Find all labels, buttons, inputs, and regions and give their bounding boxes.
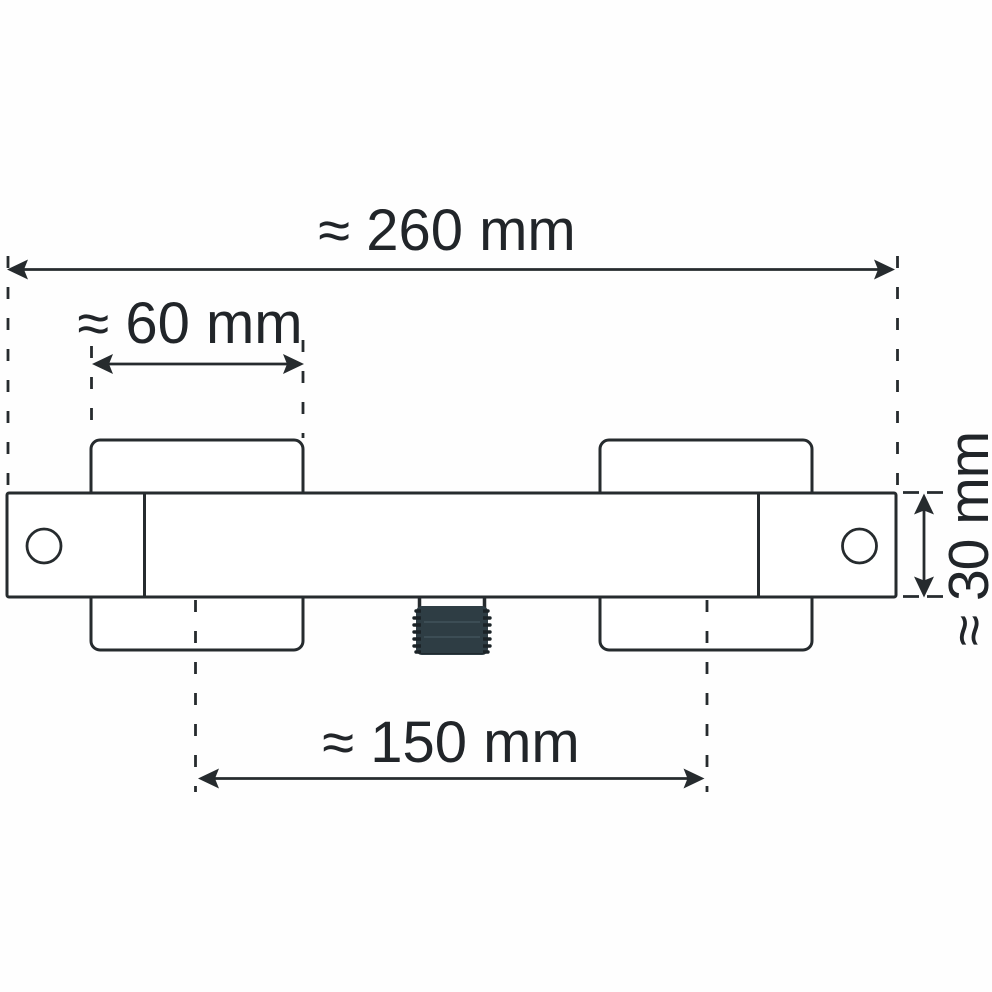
svg-text:≈ 260 mm: ≈ 260 mm	[318, 198, 575, 263]
svg-text:≈ 60 mm: ≈ 60 mm	[77, 291, 302, 356]
svg-text:≈ 150 mm: ≈ 150 mm	[322, 710, 579, 775]
svg-text:≈ 30 mm: ≈ 30 mm	[937, 432, 992, 646]
